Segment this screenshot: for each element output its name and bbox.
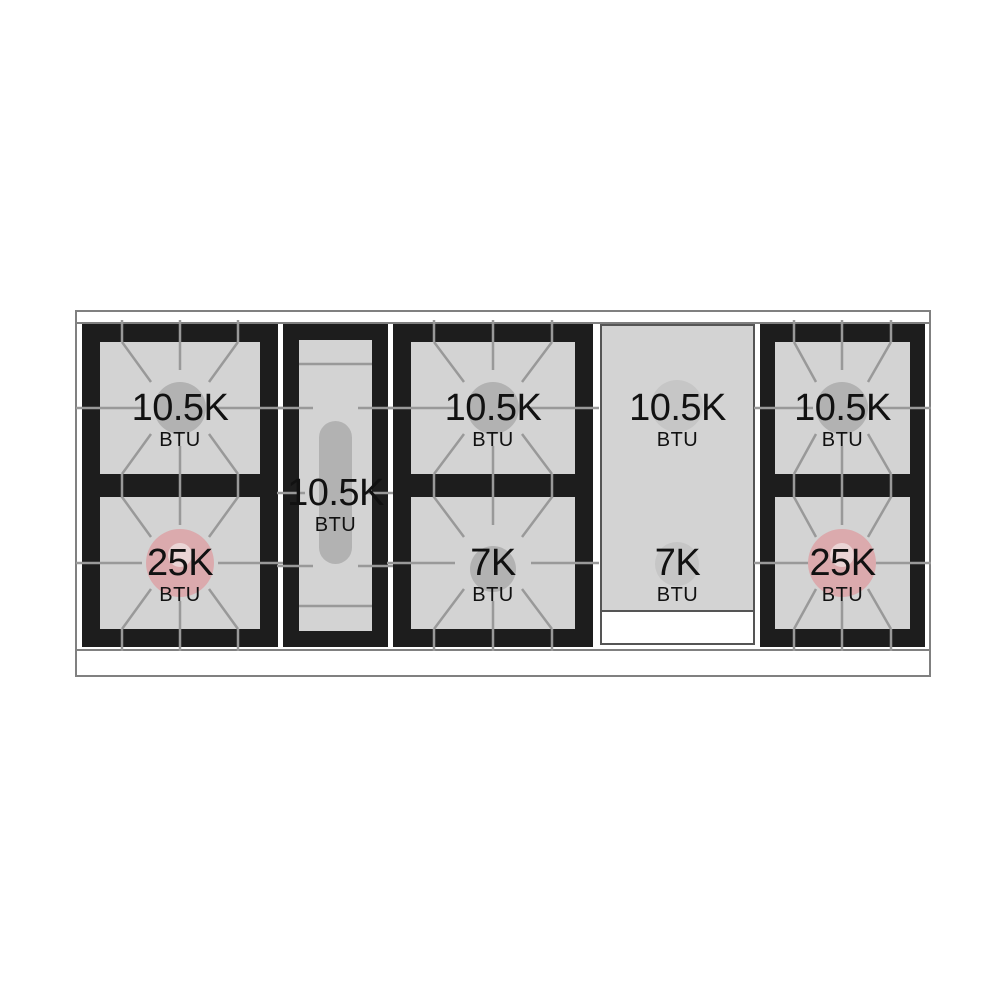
burner-cap-icon <box>655 542 699 586</box>
power-burner-cap-center <box>830 543 854 567</box>
oval-burner-cap-icon <box>319 421 352 564</box>
diagram-canvas: 10.5K BTU 25K BTU 10.5K BTU <box>0 0 1000 1000</box>
section-middle-double-burner: 10.5K BTU 7K BTU <box>393 324 593 647</box>
griddle-graphic <box>588 312 767 659</box>
section-left-double-burner: 10.5K BTU 25K BTU <box>82 324 278 647</box>
grate-graphic-right <box>748 312 937 659</box>
burner-cap-icon <box>470 546 516 592</box>
power-burner-cap-center <box>168 543 192 567</box>
section-griddle-panel: 10.5K BTU 7K BTU <box>600 324 755 647</box>
burner-cap-icon <box>816 382 868 434</box>
grate-graphic-left <box>70 312 290 659</box>
grate-graphic-middle <box>381 312 605 659</box>
section-right-double-burner: 10.5K BTU 25K BTU <box>760 324 925 647</box>
griddle-tray <box>601 611 754 644</box>
range-cooktop: 10.5K BTU 25K BTU 10.5K BTU <box>75 310 931 677</box>
burner-cap-icon <box>651 380 703 432</box>
burner-cap-icon <box>467 382 519 434</box>
burner-cap-icon <box>154 382 206 434</box>
section-center-oval-burner: 10.5K BTU <box>283 324 388 647</box>
